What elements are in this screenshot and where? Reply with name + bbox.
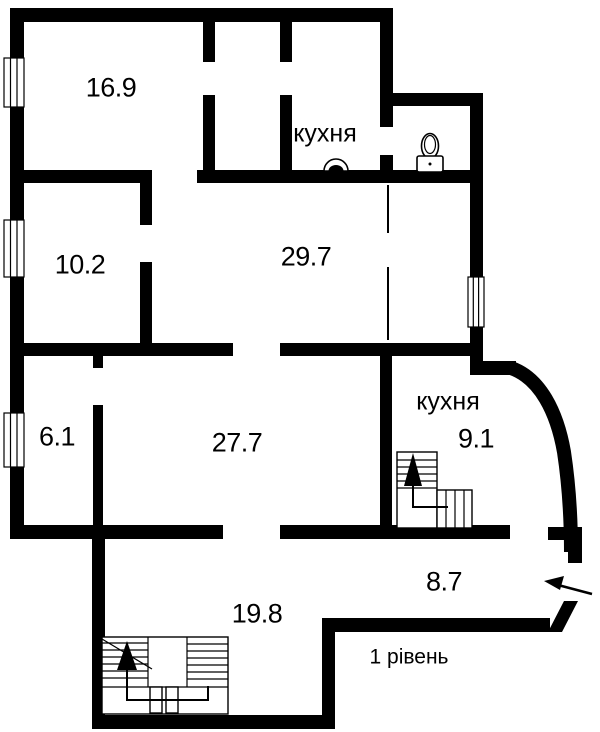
- wall-a1: [203, 22, 215, 62]
- wall-g2: [93, 405, 103, 525]
- wall-bay-curve: [511, 368, 571, 552]
- wall-h1-left: [10, 170, 152, 183]
- floor-plan: 16.9 10.2 29.7 6.1 27.7 кухня кухня 9.1 …: [0, 0, 600, 732]
- wall-b1: [280, 22, 292, 62]
- wall-entry-cap: [548, 601, 578, 632]
- wall-annex-bottom: [92, 715, 335, 729]
- wall-annex-right: [322, 618, 335, 729]
- wall-b2: [280, 95, 292, 172]
- kitchen-lower-label: кухня: [416, 390, 480, 415]
- room-area-label-29-7: 29.7: [281, 244, 332, 271]
- wall-a2: [203, 95, 215, 172]
- stairs-up-main: [102, 637, 228, 714]
- kitchen-upper-label: кухня: [293, 122, 357, 147]
- toilet-icon: [417, 134, 443, 173]
- room-area-label-8-7: 8.7: [426, 569, 462, 596]
- wall-bottom-main-left: [10, 525, 223, 539]
- level-label: 1 рівень: [370, 647, 449, 668]
- window-icon: [4, 413, 24, 467]
- room-area-label-6-1: 6.1: [39, 424, 75, 451]
- entrance-arrow-icon: [544, 576, 592, 594]
- window-icon: [4, 220, 24, 277]
- wall-e2: [140, 262, 152, 343]
- wall-bottom-main-right: [280, 525, 510, 539]
- wall-kitchen-left: [380, 356, 392, 539]
- window-icon: [4, 58, 24, 107]
- wall-right-upper: [470, 93, 483, 277]
- room-area-label-16-9: 16.9: [86, 75, 137, 102]
- room-area-label-10-2: 10.2: [55, 252, 106, 279]
- wall-topright-jog: [393, 93, 483, 106]
- wall-wc-bottom: [380, 155, 393, 172]
- wall-kitchen-top: [470, 361, 516, 375]
- wall-top: [10, 8, 393, 22]
- wall-h2-right: [280, 343, 483, 356]
- wall-e1: [140, 183, 152, 225]
- wall-corridor-bottom: [322, 618, 550, 632]
- room-area-label-27-7: 27.7: [212, 430, 263, 457]
- wall-wc-top: [380, 106, 393, 127]
- room-area-label-9-1: 9.1: [458, 426, 494, 453]
- wall-g1: [93, 356, 103, 368]
- walls: [10, 8, 582, 729]
- sink-icon: [324, 159, 348, 171]
- wall-entry-stub: [568, 527, 582, 563]
- floor-plan-drawing: [0, 0, 600, 732]
- wall-topright-vert: [380, 8, 393, 115]
- window-icon: [468, 277, 484, 327]
- room-area-label-19-8: 19.8: [232, 601, 283, 628]
- wall-h2-left: [10, 343, 233, 356]
- stairs-up-kitchen: [397, 452, 472, 528]
